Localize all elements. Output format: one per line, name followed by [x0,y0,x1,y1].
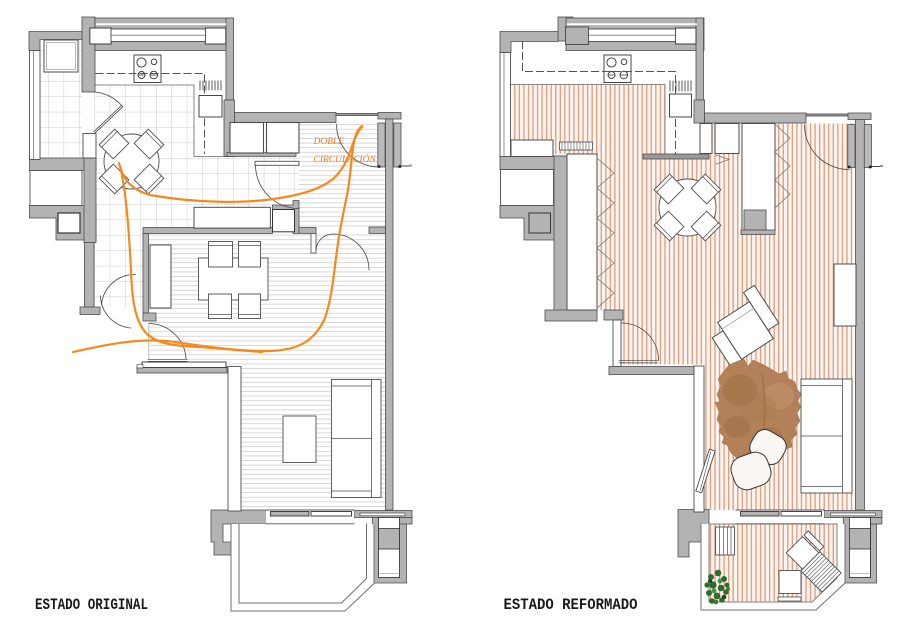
svg-text:CIRCULACIÓN: CIRCULACIÓN [314,153,377,165]
svg-text:ESTADO REFORMADO: ESTADO REFORMADO [504,596,638,614]
svg-text:ESTADO ORIGINAL: ESTADO ORIGINAL [35,596,148,614]
svg-text:DOBLE: DOBLE [313,137,345,147]
